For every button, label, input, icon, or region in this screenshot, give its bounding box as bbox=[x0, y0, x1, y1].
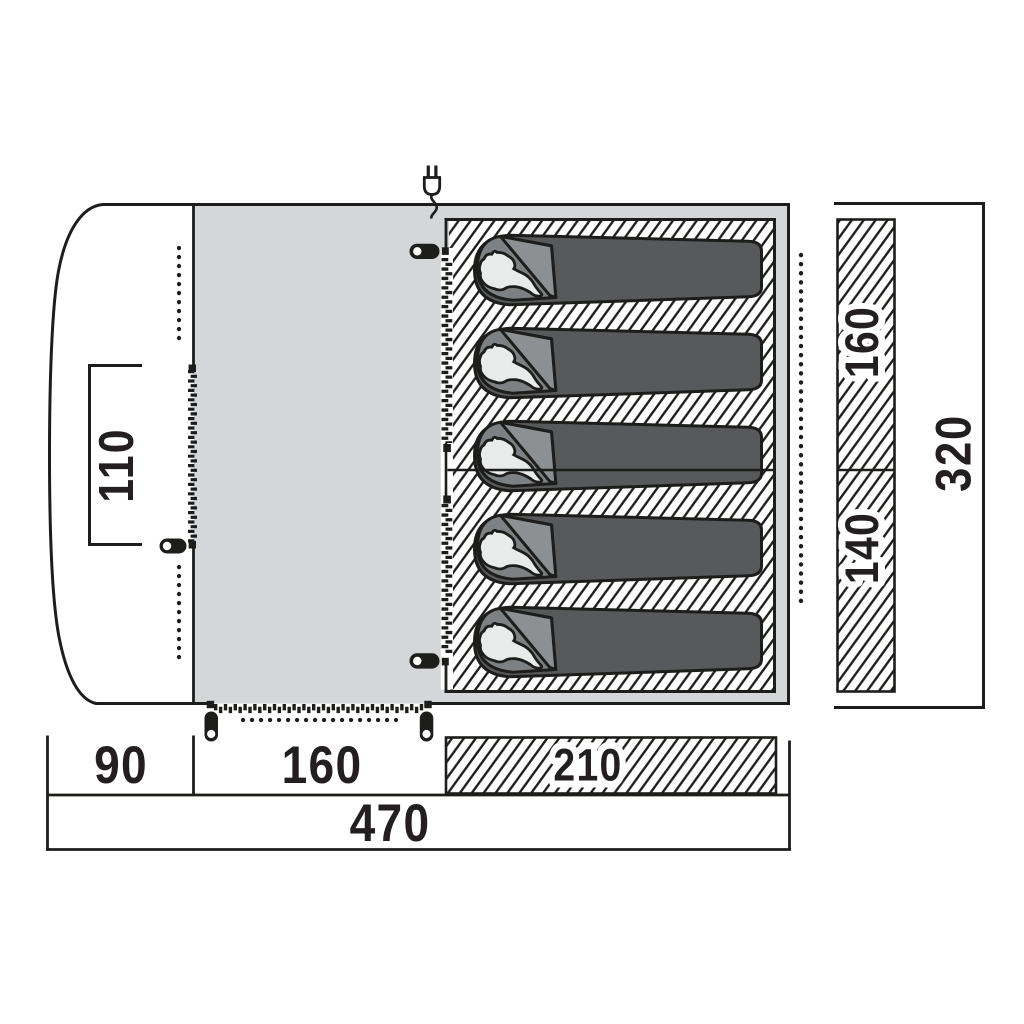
svg-text:470: 470 bbox=[350, 793, 431, 853]
svg-text:320: 320 bbox=[926, 414, 981, 492]
svg-text:140: 140 bbox=[836, 512, 888, 584]
svg-text:110: 110 bbox=[88, 427, 143, 502]
svg-text:90: 90 bbox=[94, 735, 148, 795]
svg-text:210: 210 bbox=[553, 740, 622, 790]
svg-text:160: 160 bbox=[836, 306, 888, 378]
svg-text:160: 160 bbox=[282, 735, 363, 795]
